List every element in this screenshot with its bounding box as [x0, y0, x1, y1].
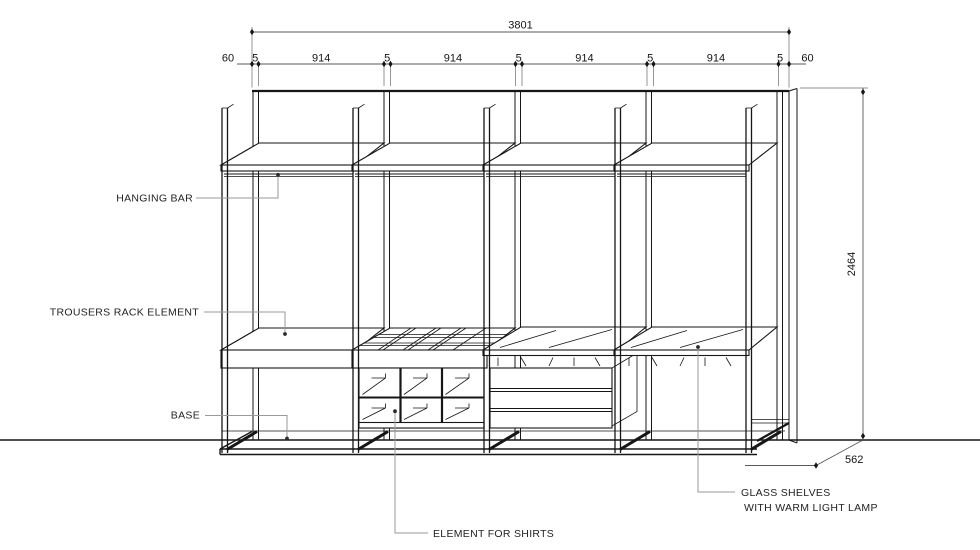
leader-dot — [285, 437, 289, 441]
leader-dot — [276, 173, 280, 177]
label-trousers-rack: TROUSERS RACK ELEMENT — [50, 307, 200, 319]
callout-element-for-shirts: ELEMENT FOR SHIRTS — [393, 409, 554, 540]
dim-seg-60-left: 60 — [222, 53, 234, 65]
top-shelves — [221, 143, 777, 171]
dimension-width-segments: 60 5 914 5 914 5 914 5 914 5 60 — [222, 53, 814, 87]
callout-trousers-rack: TROUSERS RACK ELEMENT — [50, 307, 287, 336]
warm-light-ticks — [629, 358, 731, 367]
dim-seg-914-4: 914 — [707, 53, 725, 65]
leader-dot — [696, 345, 700, 349]
wardrobe-technical-drawing: 3801 60 5 914 5 914 5 914 5 914 5 60 246… — [0, 0, 980, 550]
elevation-drawing-svg: 3801 60 5 914 5 914 5 914 5 914 5 60 246… — [0, 0, 980, 550]
label-glass-shelves-line2: WITH WARM LIGHT LAMP — [744, 502, 878, 514]
callout-base: BASE — [171, 410, 289, 441]
side-panel-right — [789, 89, 797, 444]
callout-hanging-bar: HANGING BAR — [116, 173, 280, 205]
dim-seg-914-2: 914 — [444, 53, 462, 65]
hanging-bars — [224, 174, 746, 177]
dim-depth-value: 562 — [845, 454, 863, 466]
label-glass-shelves-line1: GLASS SHELVES — [741, 487, 831, 499]
callout-glass-shelves: GLASS SHELVES WITH WARM LIGHT LAMP — [696, 345, 878, 514]
dimension-height: 2464 — [800, 88, 868, 440]
dim-height-value: 2464 — [846, 252, 858, 276]
warm-light-ticks — [498, 358, 600, 367]
label-base: BASE — [171, 410, 200, 422]
shirt-cubbies — [359, 368, 484, 428]
dimension-depth: 562 — [745, 441, 863, 467]
dim-seg-914-1: 914 — [312, 53, 330, 65]
dim-total-width-value: 3801 — [508, 20, 532, 32]
leader-dot — [283, 332, 287, 336]
dim-seg-60-right: 60 — [801, 53, 813, 65]
label-element-for-shirts: ELEMENT FOR SHIRTS — [433, 528, 554, 540]
dim-seg-914-3: 914 — [575, 53, 593, 65]
leader-dot — [393, 409, 397, 413]
label-hanging-bar: HANGING BAR — [116, 193, 193, 205]
